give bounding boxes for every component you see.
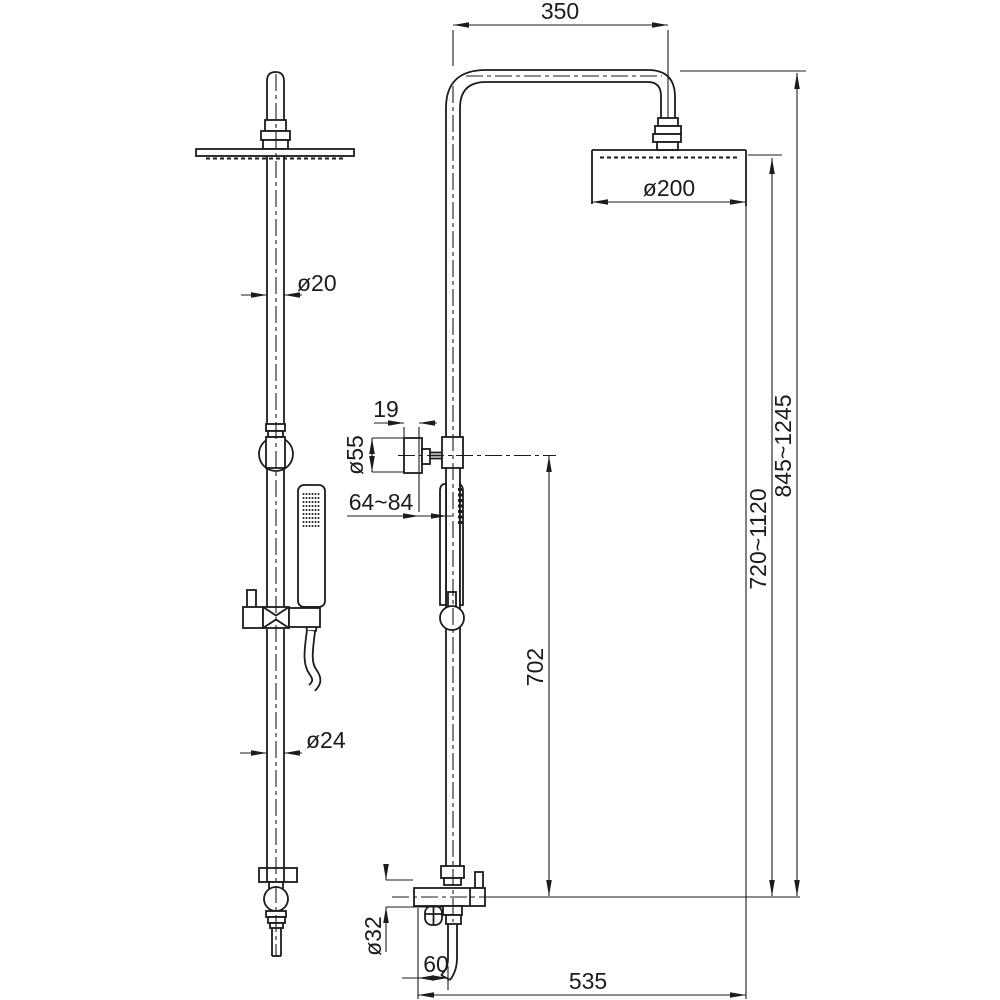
spray-dot bbox=[309, 497, 311, 499]
spray-dot bbox=[303, 517, 305, 519]
dimension-lower-pipe-diameter: ø24 bbox=[240, 727, 346, 756]
spray-dot bbox=[315, 513, 317, 515]
spray-dot bbox=[306, 525, 308, 527]
dim-label-head-diameter: ø200 bbox=[643, 175, 695, 201]
spray-dot bbox=[318, 505, 320, 507]
hand-shower-handle bbox=[298, 485, 325, 607]
spray-dot bbox=[303, 513, 305, 515]
spray-dot bbox=[306, 505, 308, 507]
spray-dot bbox=[303, 509, 305, 511]
spray-dot bbox=[309, 505, 311, 507]
dim-label-wall-clearance: 64~84 bbox=[349, 489, 414, 515]
spray-dot bbox=[309, 525, 311, 527]
dimension-arm-offset: 350 bbox=[453, 0, 668, 118]
dim-label-lower-pipe-diameter: ø24 bbox=[306, 727, 346, 753]
dimension-outlet-offset: 60 bbox=[402, 951, 449, 990]
spray-dot bbox=[318, 521, 320, 523]
spray-dot bbox=[318, 501, 320, 503]
spray-dot bbox=[315, 525, 317, 527]
side-shower-head bbox=[196, 149, 354, 156]
spray-dot bbox=[306, 493, 308, 495]
dim-label-outlet-offset: 60 bbox=[423, 951, 449, 977]
dimension-bracket-face-diameter: ø55 bbox=[342, 435, 404, 475]
spray-dot bbox=[303, 505, 305, 507]
spray-dot bbox=[312, 505, 314, 507]
spray-dot bbox=[312, 513, 314, 515]
spray-dot bbox=[315, 509, 317, 511]
spray-dot bbox=[315, 493, 317, 495]
dim-label-bracket-depth: 19 bbox=[373, 396, 399, 422]
side-bottom-assembly bbox=[259, 868, 297, 956]
dimension-upper-pipe-diameter: ø20 bbox=[241, 270, 337, 298]
centerlines bbox=[276, 74, 662, 956]
dimension-overall-height: 845~1245 bbox=[680, 71, 806, 896]
spray-dot bbox=[303, 493, 305, 495]
spray-dot bbox=[306, 521, 308, 523]
front-ball-joint bbox=[440, 606, 464, 630]
spray-dot bbox=[303, 521, 305, 523]
spray-dot bbox=[306, 509, 308, 511]
spray-dot bbox=[309, 493, 311, 495]
spray-dot bbox=[309, 501, 311, 503]
spray-dot bbox=[312, 501, 314, 503]
technical-drawing: 350 ø200 ø20 19 bbox=[0, 0, 1000, 1000]
spray-dot bbox=[312, 517, 314, 519]
spray-dot bbox=[306, 497, 308, 499]
spray-dot bbox=[315, 497, 317, 499]
front-gooseneck bbox=[446, 70, 675, 867]
spray-dot bbox=[315, 521, 317, 523]
spray-dot bbox=[318, 513, 320, 515]
spray-dot bbox=[318, 509, 320, 511]
spray-dot bbox=[315, 501, 317, 503]
spray-dot bbox=[312, 509, 314, 511]
spray-dot bbox=[306, 501, 308, 503]
valve-handle bbox=[475, 872, 483, 888]
spray-dot bbox=[303, 525, 305, 527]
dimension-bracket-to-valve: 702 bbox=[522, 456, 552, 896]
dim-label-arm-offset: 350 bbox=[541, 0, 579, 24]
spray-dot bbox=[312, 525, 314, 527]
dimension-valve-to-head-edge: 535 bbox=[418, 206, 746, 999]
dimension-wall-clearance: 64~84 bbox=[347, 489, 452, 519]
spray-dot bbox=[312, 493, 314, 495]
spray-dot bbox=[303, 497, 305, 499]
dim-label-bracket-to-valve: 702 bbox=[522, 648, 548, 686]
front-head-connector bbox=[653, 118, 681, 150]
dim-label-bracket-face-diameter: ø55 bbox=[342, 435, 368, 475]
front-view bbox=[404, 70, 746, 980]
spray-dot bbox=[315, 505, 317, 507]
spray-dot bbox=[309, 521, 311, 523]
spray-dot bbox=[315, 517, 317, 519]
drawing-canvas: 350 ø200 ø20 19 bbox=[0, 0, 1000, 1000]
spray-dot bbox=[312, 521, 314, 523]
side-hand-shower bbox=[298, 485, 325, 688]
valve-diverter-knob bbox=[425, 906, 442, 925]
dimension-head-diameter: ø200 bbox=[592, 175, 746, 205]
spray-dot bbox=[318, 493, 320, 495]
spray-dot bbox=[306, 517, 308, 519]
dim-label-upper-pipe-diameter: ø20 bbox=[297, 270, 337, 296]
dim-label-valve-diameter: ø32 bbox=[360, 916, 386, 956]
spray-dot bbox=[306, 513, 308, 515]
dim-label-head-to-valve: 720~1120 bbox=[745, 488, 771, 589]
front-hand-shower-silhouette bbox=[440, 484, 463, 605]
spray-dot bbox=[318, 517, 320, 519]
spray-dot bbox=[312, 497, 314, 499]
spray-dot bbox=[318, 497, 320, 499]
side-view bbox=[196, 72, 354, 956]
dim-label-valve-to-head-edge: 535 bbox=[569, 968, 607, 994]
dimension-head-to-valve: 720~1120 bbox=[745, 155, 782, 896]
spray-dot bbox=[309, 509, 311, 511]
spray-dot bbox=[309, 517, 311, 519]
dim-label-overall-height: 845~1245 bbox=[770, 395, 796, 498]
spray-dot bbox=[303, 501, 305, 503]
spray-dot bbox=[309, 513, 311, 515]
spray-dot bbox=[318, 525, 320, 527]
